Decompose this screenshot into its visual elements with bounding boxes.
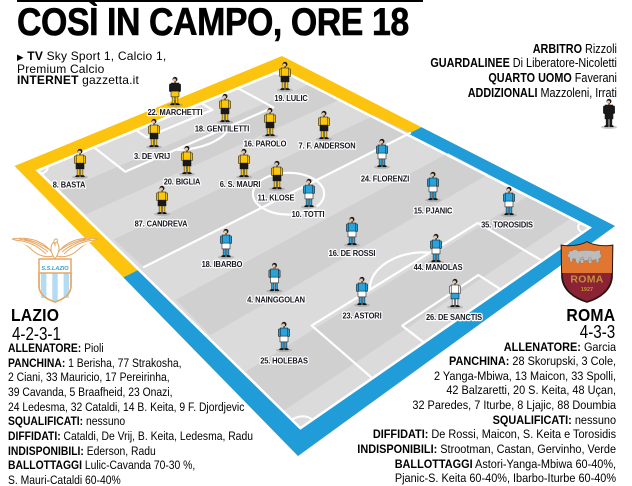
- svg-text:ROMA: ROMA: [570, 274, 603, 286]
- svg-text:22. MARCHETTI: 22. MARCHETTI: [148, 107, 203, 117]
- svg-text:3. DE VRIJ: 3. DE VRIJ: [134, 151, 170, 161]
- svg-text:11. KLOSE: 11. KLOSE: [258, 193, 295, 203]
- svg-text:8. BASTA: 8. BASTA: [53, 180, 86, 190]
- svg-text:23. ASTORI: 23. ASTORI: [342, 311, 381, 321]
- svg-text:87. CANDREVA: 87. CANDREVA: [135, 219, 188, 229]
- svg-text:25. HOLEBAS: 25. HOLEBAS: [260, 356, 308, 366]
- svg-text:16. PAROLO: 16. PAROLO: [244, 139, 287, 149]
- svg-text:16. DE ROSSI: 16. DE ROSSI: [329, 248, 376, 258]
- svg-text:35. TOROSIDIS: 35. TOROSIDIS: [481, 220, 533, 230]
- svg-text:7. F. ANDERSON: 7. F. ANDERSON: [299, 141, 356, 151]
- svg-text:1927: 1927: [581, 287, 593, 293]
- svg-text:6. S. MAURI: 6. S. MAURI: [220, 179, 261, 189]
- svg-text:4. NAINGGOLAN: 4. NAINGGOLAN: [247, 295, 305, 305]
- svg-text:20. BIGLIA: 20. BIGLIA: [164, 177, 201, 187]
- svg-text:24. FLORENZI: 24. FLORENZI: [361, 174, 409, 184]
- svg-text:S.S.LAZIO: S.S.LAZIO: [41, 266, 69, 272]
- svg-text:15. PJANIC: 15. PJANIC: [414, 206, 453, 216]
- svg-text:18. GENTILETTI: 18. GENTILETTI: [195, 124, 249, 134]
- svg-text:44. MANOLAS: 44. MANOLAS: [414, 262, 464, 272]
- svg-text:10. TOTTI: 10. TOTTI: [292, 209, 325, 219]
- svg-text:18. IBARBO: 18. IBARBO: [202, 259, 243, 269]
- svg-text:19. LULIC: 19. LULIC: [274, 93, 308, 103]
- svg-text:26. DE SANCTIS: 26. DE SANCTIS: [426, 312, 483, 322]
